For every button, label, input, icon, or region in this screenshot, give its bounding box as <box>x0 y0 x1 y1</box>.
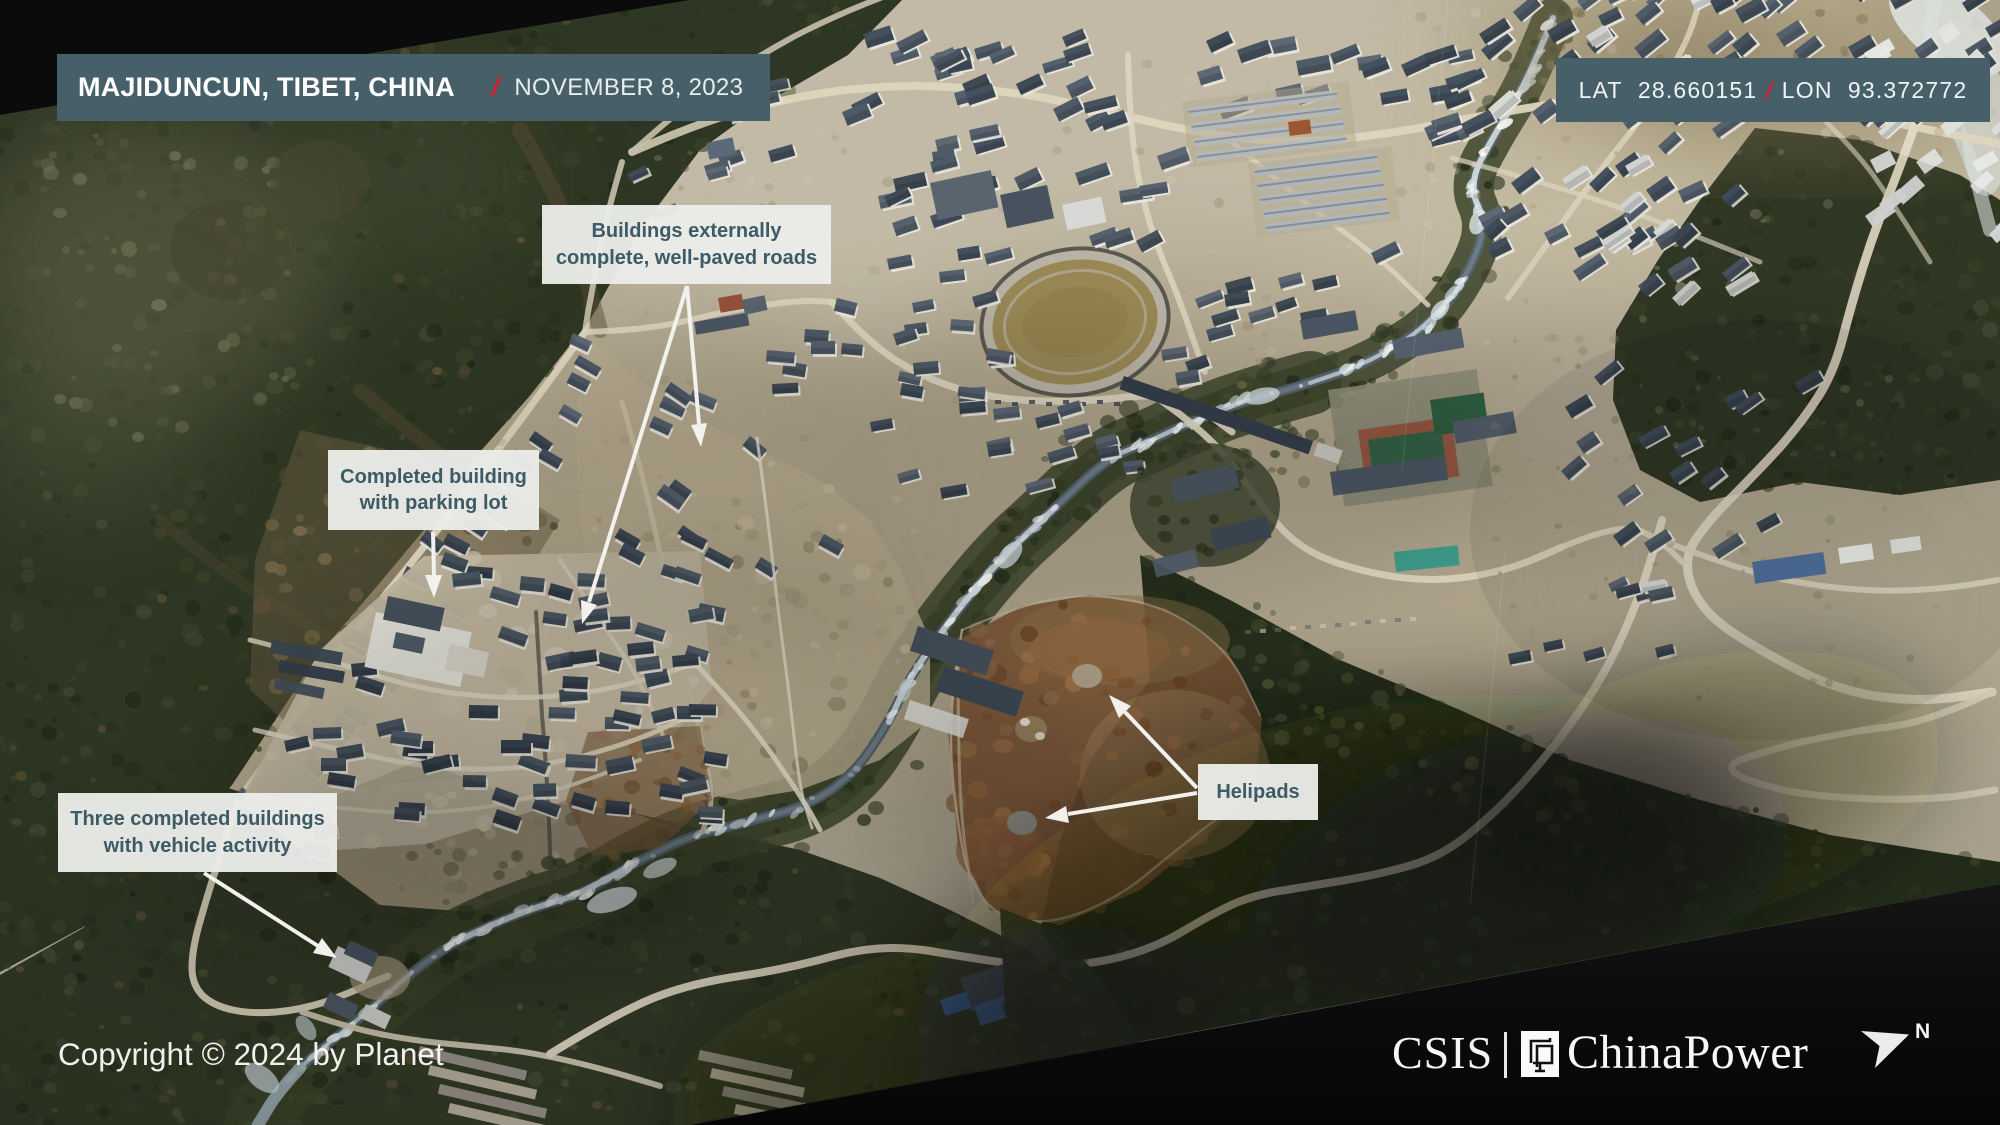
svg-text:ChinaPower: ChinaPower <box>1567 1026 1808 1079</box>
svg-text:N: N <box>1915 1020 1930 1043</box>
svg-text:CSIS: CSIS <box>1392 1027 1493 1078</box>
